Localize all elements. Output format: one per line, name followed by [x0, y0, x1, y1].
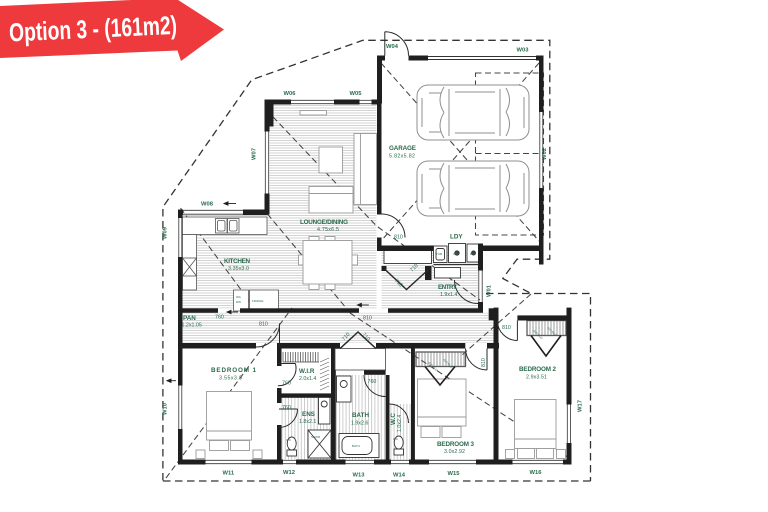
svg-text:TUB: TUB — [436, 252, 442, 256]
svg-text:WA: WA — [236, 295, 241, 299]
svg-text:3.0x2.92: 3.0x2.92 — [444, 449, 465, 455]
svg-text:W.C: W.C — [390, 413, 397, 425]
svg-text:810: 810 — [502, 325, 511, 331]
svg-text:1.9x2.6: 1.9x2.6 — [351, 421, 368, 427]
svg-text:ENTRY: ENTRY — [438, 284, 458, 291]
svg-text:ENS: ENS — [302, 411, 315, 418]
svg-text:W08: W08 — [201, 202, 214, 208]
svg-text:5.82x5.82: 5.82x5.82 — [389, 154, 415, 160]
svg-text:DW: DW — [236, 300, 241, 304]
svg-text:W.I.R: W.I.R — [299, 368, 315, 375]
svg-text:W06: W06 — [284, 91, 297, 97]
svg-text:BATH: BATH — [352, 444, 360, 448]
svg-text:W01: W01 — [487, 284, 493, 297]
svg-text:LOUNGE/DINING: LOUNGE/DINING — [300, 219, 348, 226]
svg-text:810: 810 — [363, 316, 372, 322]
svg-text:GARAGE: GARAGE — [389, 145, 416, 152]
svg-text:810: 810 — [481, 358, 487, 367]
svg-text:W02: W02 — [542, 148, 548, 160]
svg-text:1.2x1.05: 1.2x1.05 — [182, 323, 202, 329]
svg-text:W16: W16 — [530, 470, 543, 476]
svg-text:760: 760 — [215, 315, 224, 321]
svg-text:BEDROOM 2: BEDROOM 2 — [519, 366, 556, 373]
svg-text:LDY: LDY — [450, 234, 463, 241]
svg-text:KITCHEN: KITCHEN — [224, 258, 250, 265]
svg-text:WM: WM — [453, 252, 459, 256]
svg-text:W17: W17 — [578, 400, 584, 412]
svg-text:1.8x2.1: 1.8x2.1 — [299, 419, 316, 425]
svg-text:2.9x3.51: 2.9x3.51 — [526, 375, 547, 381]
svg-text:FRIDGE: FRIDGE — [252, 299, 263, 303]
svg-text:810: 810 — [394, 235, 403, 241]
svg-text:760: 760 — [282, 405, 291, 411]
svg-text:W11: W11 — [223, 471, 235, 477]
svg-text:BEDROOM 3: BEDROOM 3 — [437, 441, 474, 448]
svg-text:W14: W14 — [393, 473, 406, 479]
svg-text:1.9x1.4: 1.9x1.4 — [440, 292, 457, 298]
svg-text:WC: WC — [393, 437, 399, 441]
svg-text:PAN: PAN — [183, 315, 196, 322]
svg-text:SHWR: SHWR — [311, 435, 321, 439]
svg-text:2.0x1.4: 2.0x1.4 — [299, 376, 316, 382]
svg-text:810: 810 — [259, 322, 268, 328]
svg-text:BATH: BATH — [352, 412, 369, 419]
svg-text:W13: W13 — [353, 473, 366, 479]
svg-text:W15: W15 — [448, 471, 461, 477]
svg-text:1.0x2.4: 1.0x2.4 — [397, 415, 403, 432]
svg-text:W09: W09 — [163, 226, 169, 239]
svg-text:3.35x3.0: 3.35x3.0 — [228, 266, 249, 272]
svg-text:WC: WC — [286, 438, 292, 442]
svg-text:BEDROOM 1: BEDROOM 1 — [211, 367, 256, 374]
svg-text:W04: W04 — [386, 44, 399, 50]
svg-text:3.55x3.9: 3.55x3.9 — [219, 376, 242, 382]
svg-text:760: 760 — [282, 381, 291, 387]
svg-text:4.75x6.5: 4.75x6.5 — [317, 227, 339, 233]
svg-text:W05: W05 — [350, 91, 363, 97]
svg-text:W10: W10 — [163, 403, 169, 415]
svg-text:760: 760 — [368, 379, 377, 385]
svg-text:W12: W12 — [283, 470, 295, 476]
svg-text:W03: W03 — [517, 48, 530, 54]
svg-text:W07: W07 — [252, 148, 258, 160]
